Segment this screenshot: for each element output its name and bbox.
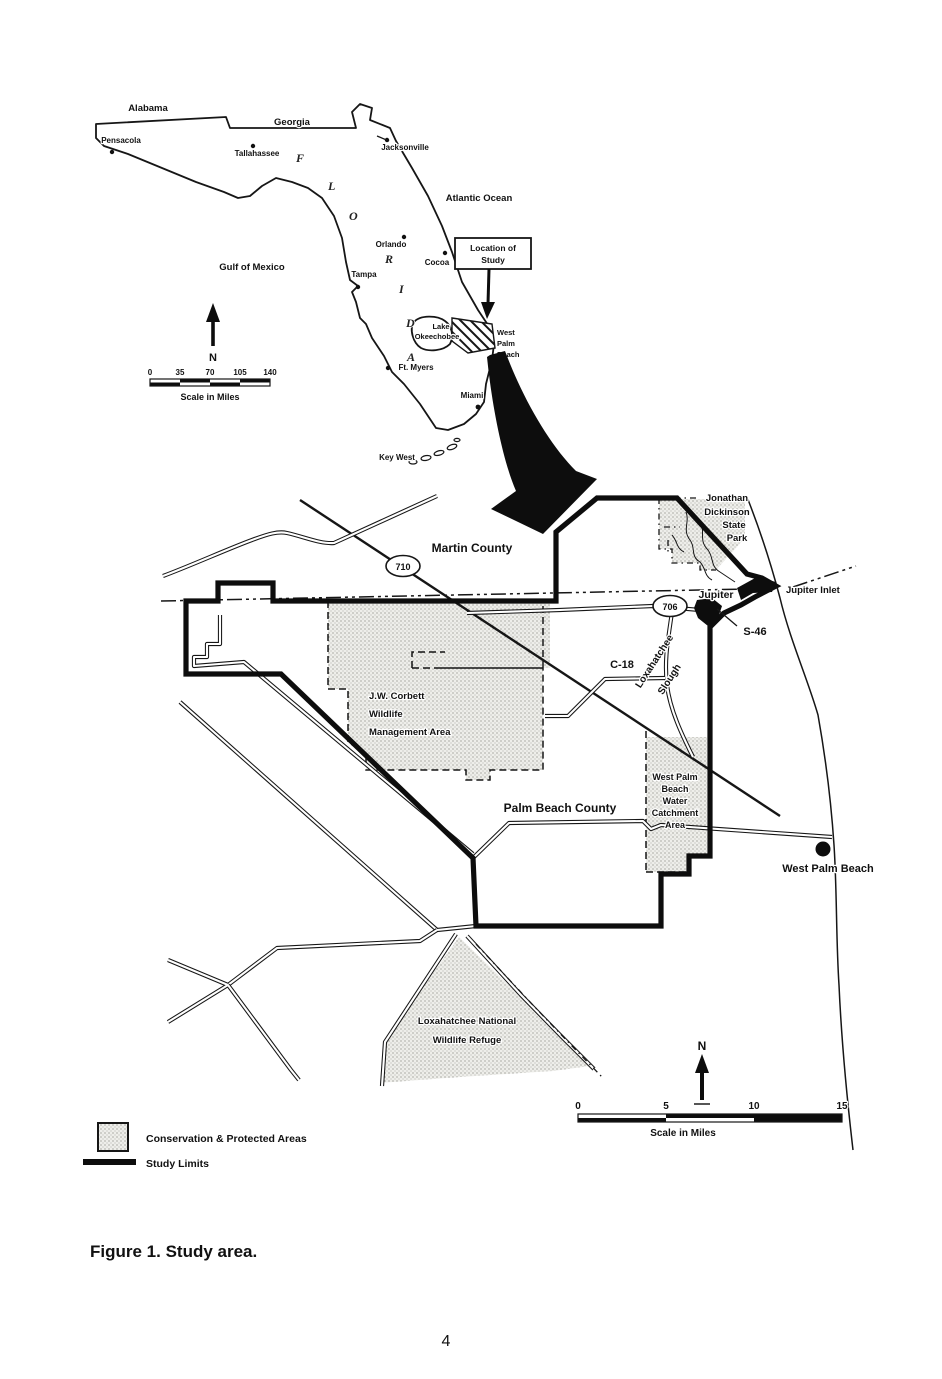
figure-caption: Figure 1. Study area.	[90, 1242, 257, 1261]
florida-keys	[409, 438, 460, 464]
florida-letter-f: F	[295, 151, 304, 165]
florida-outline	[96, 104, 494, 430]
jacksonville-label: Jacksonville	[381, 143, 429, 152]
route-710-label: 710	[395, 562, 410, 572]
refuge-label-line2: Wildlife Refuge	[433, 1035, 502, 1046]
figure-map: Alabama Georgia Pensacola Tallahassee Ja…	[0, 0, 942, 1379]
lake-label-line2: Okeechobee	[415, 332, 460, 341]
overview-map: Alabama Georgia Pensacola Tallahassee Ja…	[96, 103, 597, 534]
refuge-area-fill	[380, 937, 590, 1083]
cocoa-dot	[443, 251, 447, 255]
c18-label: C-18	[610, 659, 634, 671]
lake-label-line1: Lake	[432, 322, 449, 331]
cocoa-label: Cocoa	[425, 258, 450, 267]
west-palm-beach-city-label: West Palm Beach	[782, 863, 874, 875]
dt-scale-tick-3: 15	[836, 1101, 848, 1112]
corbett-label-line3: Management Area	[369, 727, 451, 738]
overview-north-label: N	[209, 352, 217, 364]
park-label-line1: Jonathan	[706, 493, 748, 504]
pensacola-label: Pensacola	[101, 136, 141, 145]
catchment-label-line1: West Palm	[652, 772, 697, 782]
jupiter-inlet-label: Jupiter Inlet	[786, 585, 841, 596]
orlando-label: Orlando	[376, 240, 407, 249]
jupiter-label: Jupiter	[698, 589, 733, 601]
legend-study-limits-label: Study Limits	[146, 1158, 209, 1170]
detail-north-arrow: N	[694, 1039, 710, 1104]
overview-scale-bar: 0 35 70 105 140 Scale in Miles	[148, 368, 277, 402]
park-label-line2: Dickinson	[704, 507, 750, 518]
corbett-label-line2: Wildlife	[369, 709, 403, 720]
key-west-label: Key West	[379, 453, 415, 462]
catchment-label-line4: Catchment	[652, 808, 699, 818]
legend-conservation-swatch	[98, 1123, 128, 1151]
georgia-label: Georgia	[274, 117, 311, 128]
tampa-label: Tampa	[351, 270, 377, 279]
florida-letter-r: R	[384, 252, 393, 266]
catchment-label-line3: Water	[663, 796, 688, 806]
ov-scale-label: Scale in Miles	[180, 392, 239, 402]
corbett-label-line1: J.W. Corbett	[369, 691, 425, 702]
legend-conservation-label: Conservation & Protected Areas	[146, 1133, 307, 1145]
dt-scale-tick-0: 0	[575, 1101, 581, 1112]
callout-arrow-shaft	[488, 269, 489, 304]
route-710-shield: 710	[386, 556, 420, 577]
wpb-label-line1: West	[497, 328, 515, 337]
miami-label: Miami	[461, 391, 484, 400]
miami-dot	[476, 405, 481, 410]
dt-scale-tick-2: 10	[748, 1101, 760, 1112]
tallahassee-dot	[251, 144, 255, 148]
ov-scale-tick-1: 35	[176, 368, 185, 377]
connector-arrow	[487, 351, 597, 534]
catchment-label-line5: Area	[665, 820, 686, 830]
page-number: 4	[442, 1333, 451, 1350]
legend-study-limits-swatch	[83, 1159, 136, 1165]
ft-myers-dot	[386, 366, 390, 370]
document-page: Alabama Georgia Pensacola Tallahassee Ja…	[0, 0, 942, 1379]
orlando-dot	[402, 235, 406, 239]
park-label-line4: Park	[727, 533, 748, 544]
route-706-shield: 706	[653, 596, 687, 617]
west-palm-beach-dot	[816, 842, 831, 857]
gulf-of-mexico-label: Gulf of Mexico	[219, 262, 285, 273]
ov-scale-tick-3: 105	[233, 368, 247, 377]
ov-scale-tick-4: 140	[263, 368, 277, 377]
s46-label: S-46	[743, 626, 766, 638]
detail-scale-bar: 0 5 10 15 Scale in Miles	[575, 1101, 848, 1139]
park-label-line3: State	[722, 520, 745, 531]
legend: Conservation & Protected Areas Study Lim…	[83, 1123, 307, 1170]
refuge-label-line1: Loxahatchee National	[418, 1016, 516, 1027]
florida-letter-d: D	[405, 316, 415, 330]
dt-scale-tick-1: 5	[663, 1101, 669, 1112]
callout-line1: Location of	[470, 243, 516, 253]
ov-scale-tick-0: 0	[148, 368, 153, 377]
wpb-label-line2: Palm	[497, 339, 515, 348]
florida-letter-a: A	[406, 350, 415, 364]
florida-letter-o: O	[349, 209, 358, 223]
atlantic-ocean-label: Atlantic Ocean	[446, 193, 513, 204]
ov-scale-tick-2: 70	[206, 368, 215, 377]
overview-north-arrow: N	[206, 303, 220, 364]
detail-north-label: N	[698, 1039, 707, 1053]
catchment-label-line2: Beach	[661, 784, 688, 794]
alabama-label: Alabama	[128, 103, 168, 114]
ft-myers-label: Ft. Myers	[398, 363, 434, 372]
martin-county-label: Martin County	[432, 541, 513, 555]
florida-letter-l: L	[327, 179, 335, 193]
detail-map: 710 706 Martin County Jonathan Dickinson…	[161, 493, 874, 1150]
dt-scale-label: Scale in Miles	[650, 1128, 716, 1139]
callout-line2: Study	[481, 255, 505, 265]
route-706-label: 706	[662, 602, 677, 612]
palm-beach-county-label: Palm Beach County	[504, 801, 617, 815]
pensacola-dot	[110, 150, 114, 154]
tampa-dot	[356, 285, 360, 289]
tallahassee-label: Tallahassee	[235, 149, 280, 158]
